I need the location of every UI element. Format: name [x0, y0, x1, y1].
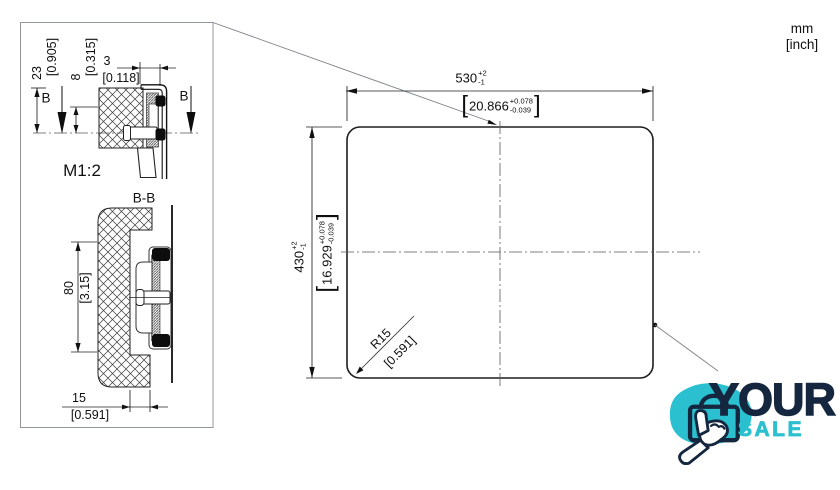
dim-15-inch: [0.591]	[71, 409, 109, 422]
dim-3-inch: [0.118]	[102, 72, 139, 85]
dim-8-inch: [0.315]	[85, 38, 98, 76]
section-marker-b-left: B	[41, 91, 50, 106]
dim-width-inch: [ 20.866 +0.078 -0.039 ]	[460, 96, 541, 115]
logo-text-your: YOUR	[709, 379, 835, 422]
brand-logo: YOUR SALE	[663, 379, 840, 465]
drawing-canvas: mm [inch] 530 +2 -1 [ 20.866 +0.078 -0.0…	[0, 0, 840, 490]
dim-width-mm: 530 +2 -1	[455, 69, 486, 86]
cutout-view	[306, 86, 700, 387]
dim-80-mm: 80	[63, 281, 76, 295]
dim-23-inch: [0.905]	[46, 38, 59, 76]
dim-23-mm: 23	[31, 66, 44, 80]
dim-height-inch: [ 16.929 +0.078 -0.039 ]	[317, 212, 336, 293]
dim-80-inch: [3.15]	[79, 272, 92, 303]
dim-3-mm: 3	[104, 55, 111, 68]
dim-height-mm: 430 +2 -1	[290, 241, 307, 272]
units-mm: mm	[775, 21, 829, 37]
section-marker-b-right: B	[179, 89, 188, 104]
logo-text-sale: SALE	[738, 419, 804, 440]
detail-scale-label: M1:2	[63, 161, 101, 181]
section-view-bb	[62, 205, 172, 412]
dim-15-mm: 15	[72, 392, 86, 405]
dim-8-mm: 8	[70, 74, 83, 81]
units-note: mm [inch]	[775, 21, 829, 53]
section-label-bb: B-B	[133, 191, 156, 206]
units-inch: [inch]	[775, 37, 829, 53]
